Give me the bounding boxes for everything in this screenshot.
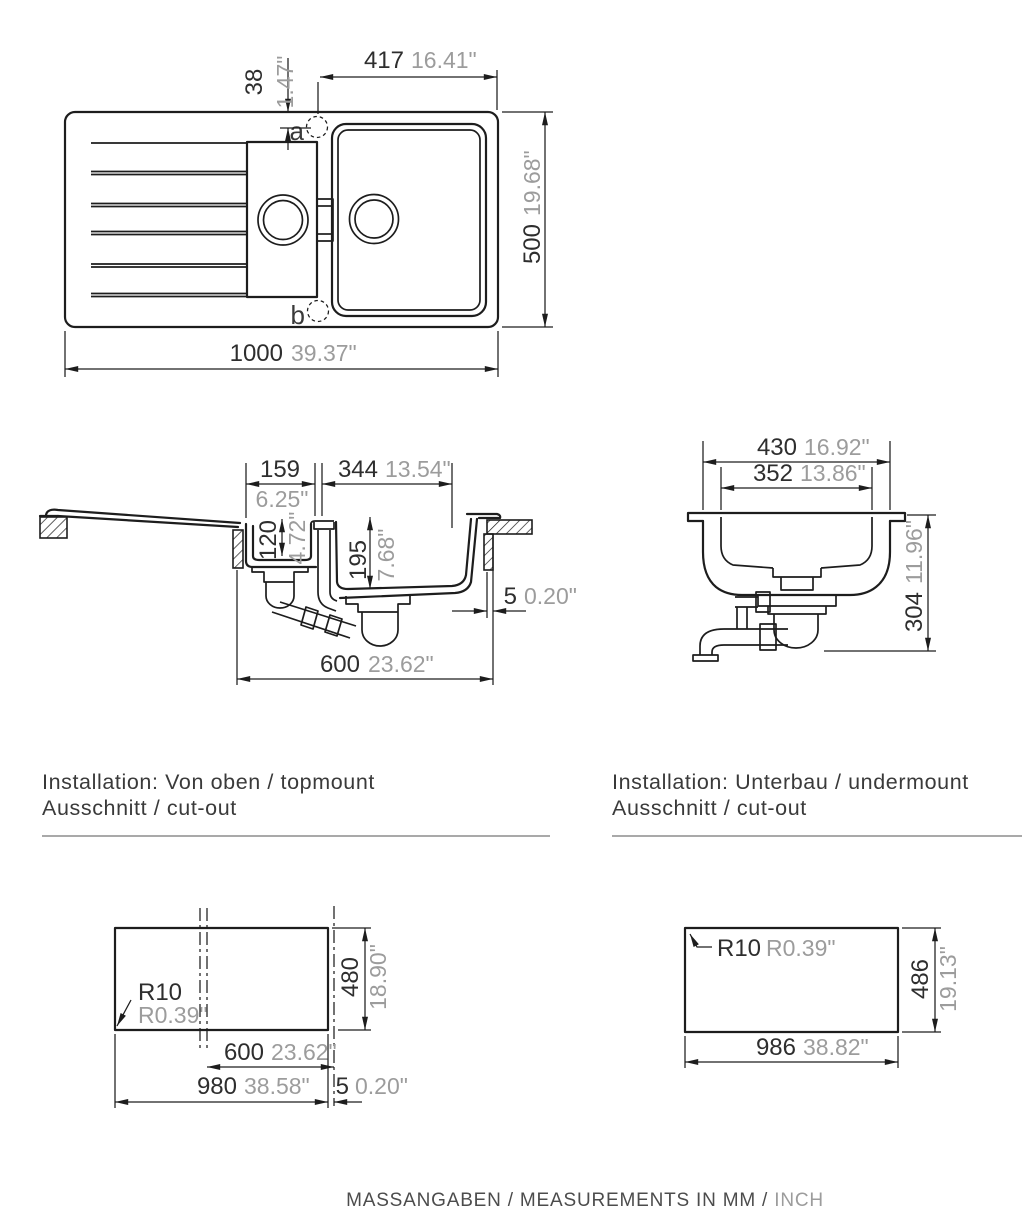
sink-datasheet: a b 417 16.41" 38 1.47" 500 19.68" 1000 …	[0, 0, 1022, 1220]
dim-1000-mm: 1000	[230, 340, 283, 367]
dim-430-inch: 16.92"	[804, 434, 870, 460]
dim-486-inch: 19.13"	[935, 946, 961, 1012]
dim-500-mm: 500	[519, 224, 546, 264]
end-section-view: 430 16.92" 352 13.86" 304 11.96"	[688, 434, 936, 661]
radius-leader	[117, 1000, 131, 1026]
dim-304-mm: 304	[901, 592, 928, 632]
dim-5-mm: 5	[504, 583, 517, 610]
divider-left	[42, 835, 550, 837]
dim-986-inch: 38.82"	[803, 1034, 869, 1060]
overflow-connector	[317, 199, 333, 241]
dim-195-mm: 195	[345, 540, 372, 580]
tap-hole-a-label: a	[290, 116, 305, 146]
large-bowl-inner	[338, 130, 480, 310]
strainer	[773, 568, 821, 590]
dim-cut5-mm: 5	[336, 1073, 349, 1100]
dim-980-inch: 38.58"	[244, 1073, 310, 1099]
cutout-topmount-view: R10 R0.39" 480 18.90" 600 23.62" 980 38.…	[115, 906, 408, 1108]
dim-417-mm: 417	[364, 47, 404, 74]
small-bowl-drain-outer	[258, 195, 308, 245]
caption-topmount-line1: Installation: Von oben / topmount	[42, 769, 550, 795]
footer-note: MASSANGABEN / MEASUREMENTS IN MM / INCH	[346, 1190, 824, 1212]
dim-480-mm: 480	[337, 957, 364, 997]
drainboard-profile	[46, 510, 240, 527]
large-bowl-drain-inner	[355, 200, 393, 238]
bowl-inner-profile	[721, 517, 872, 568]
dim-5-inch: 0.20"	[524, 583, 577, 609]
dim-38-mm: 38	[241, 69, 268, 96]
bowl-outer-profile	[703, 521, 890, 595]
outlet-elbow	[693, 629, 724, 661]
radius-leader-undermount	[690, 934, 712, 947]
dim-980-mm: 980	[197, 1073, 237, 1100]
cutout-undermount-view: R10 R0.39" 486 19.13" 986 38.82"	[685, 928, 961, 1068]
dim-500-inch: 19.68"	[519, 150, 545, 216]
dim-159-inch: 6.25"	[256, 486, 309, 512]
caption-undermount-line1: Installation: Unterbau / undermount	[612, 769, 1022, 795]
counter-cut-edge-right	[484, 534, 493, 570]
radius-undermount-inch: R0.39"	[766, 935, 836, 961]
tap-hole-b-label: b	[291, 300, 305, 330]
tap-hole-b	[308, 301, 329, 322]
dim-600-inch: 23.62"	[368, 651, 434, 677]
dim-120-inch: 4.72"	[284, 512, 310, 565]
caption-topmount-line2: Ausschnitt / cut-out	[42, 795, 550, 821]
counter-hatch-left	[40, 517, 67, 538]
dim-986-mm: 986	[756, 1034, 796, 1061]
counter-cut-edge-left	[233, 530, 243, 568]
side-section-view: 159 6.25" 344 13.54" 120 4.72" 195 7.68"…	[40, 456, 577, 685]
footer-inch: INCH	[774, 1190, 824, 1211]
dim-304-inch: 11.96"	[901, 520, 927, 584]
dim-480-inch: 18.90"	[365, 944, 391, 1010]
dim-352-mm: 352	[753, 460, 793, 487]
caption-undermount-line2: Ausschnitt / cut-out	[612, 795, 1022, 821]
lower-pipe	[724, 629, 788, 645]
radius-topmount-inch: R0.39"	[138, 1002, 208, 1028]
sink-outline	[65, 112, 498, 327]
large-bowl-drain-outer	[350, 195, 399, 244]
drainboard-ribs	[91, 143, 246, 297]
divider-right	[612, 835, 1022, 837]
dim-486-mm: 486	[907, 959, 934, 999]
counter-hatch-right	[487, 520, 532, 534]
dim-352-inch: 13.86"	[800, 460, 866, 486]
dim-430-mm: 430	[757, 434, 797, 461]
dim-cut5-inch: 0.20"	[355, 1073, 408, 1099]
dim-120-mm: 120	[255, 520, 282, 560]
top-view: a b 417 16.41" 38 1.47" 500 19.68" 1000 …	[65, 47, 553, 377]
upper-pipe	[735, 597, 758, 629]
large-bowl-trap	[346, 596, 410, 646]
dim-195-inch: 7.68"	[373, 529, 399, 582]
small-bowl-drain-inner	[264, 201, 303, 240]
dim-38-inch: 1.47"	[272, 56, 298, 109]
tap-hole-a	[307, 117, 328, 138]
dim-600-mm: 600	[320, 651, 360, 678]
small-bowl-trap	[252, 567, 308, 608]
dim-cut600-mm: 600	[224, 1039, 264, 1066]
dim-344-inch: 13.54"	[385, 456, 451, 482]
dim-1000-inch: 39.37"	[291, 340, 357, 366]
dim-159-mm: 159	[260, 456, 300, 483]
footer-main: MASSANGABEN / MEASUREMENTS IN MM /	[346, 1190, 768, 1211]
dim-417-inch: 16.41"	[411, 47, 477, 73]
technical-drawing: a b 417 16.41" 38 1.47" 500 19.68" 1000 …	[0, 0, 1022, 1220]
dim-cut600-inch: 23.62"	[271, 1039, 337, 1065]
caption-undermount: Installation: Unterbau / undermount Auss…	[612, 769, 1022, 837]
radius-undermount-mm: R10	[717, 935, 761, 962]
dim-344-mm: 344	[338, 456, 378, 483]
caption-topmount: Installation: Von oben / topmount Aussch…	[42, 769, 550, 837]
